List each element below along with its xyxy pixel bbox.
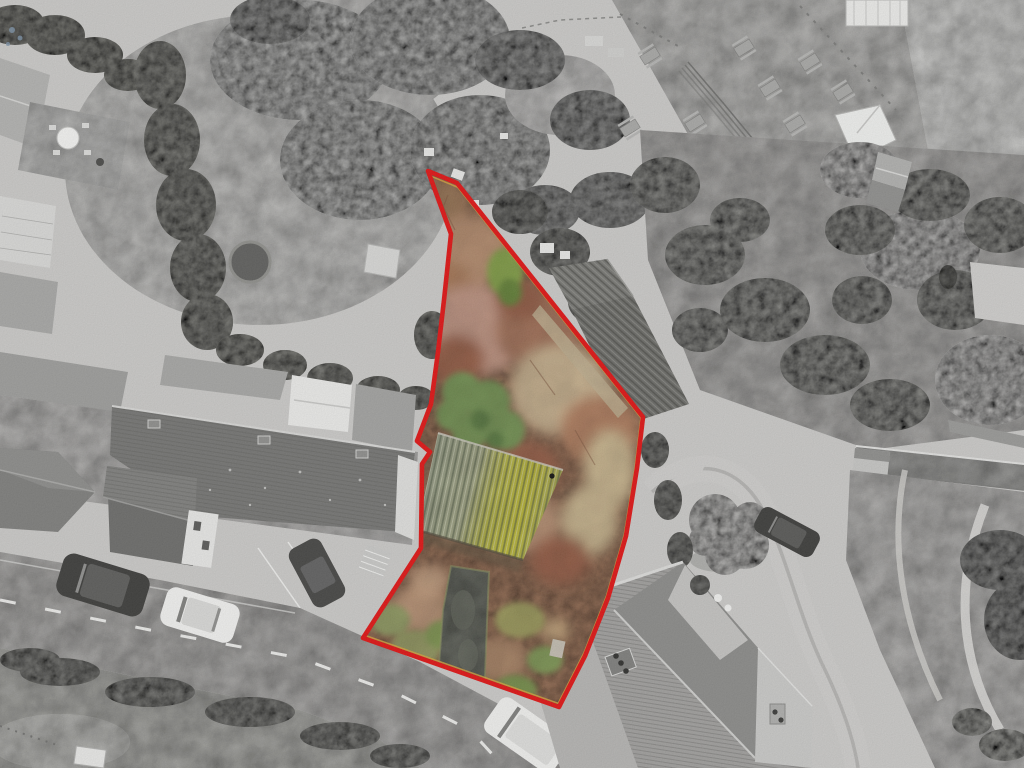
aerial-photo (0, 0, 1024, 768)
aerial-photo-svg (0, 0, 1024, 768)
film-grain-light (0, 0, 1024, 768)
